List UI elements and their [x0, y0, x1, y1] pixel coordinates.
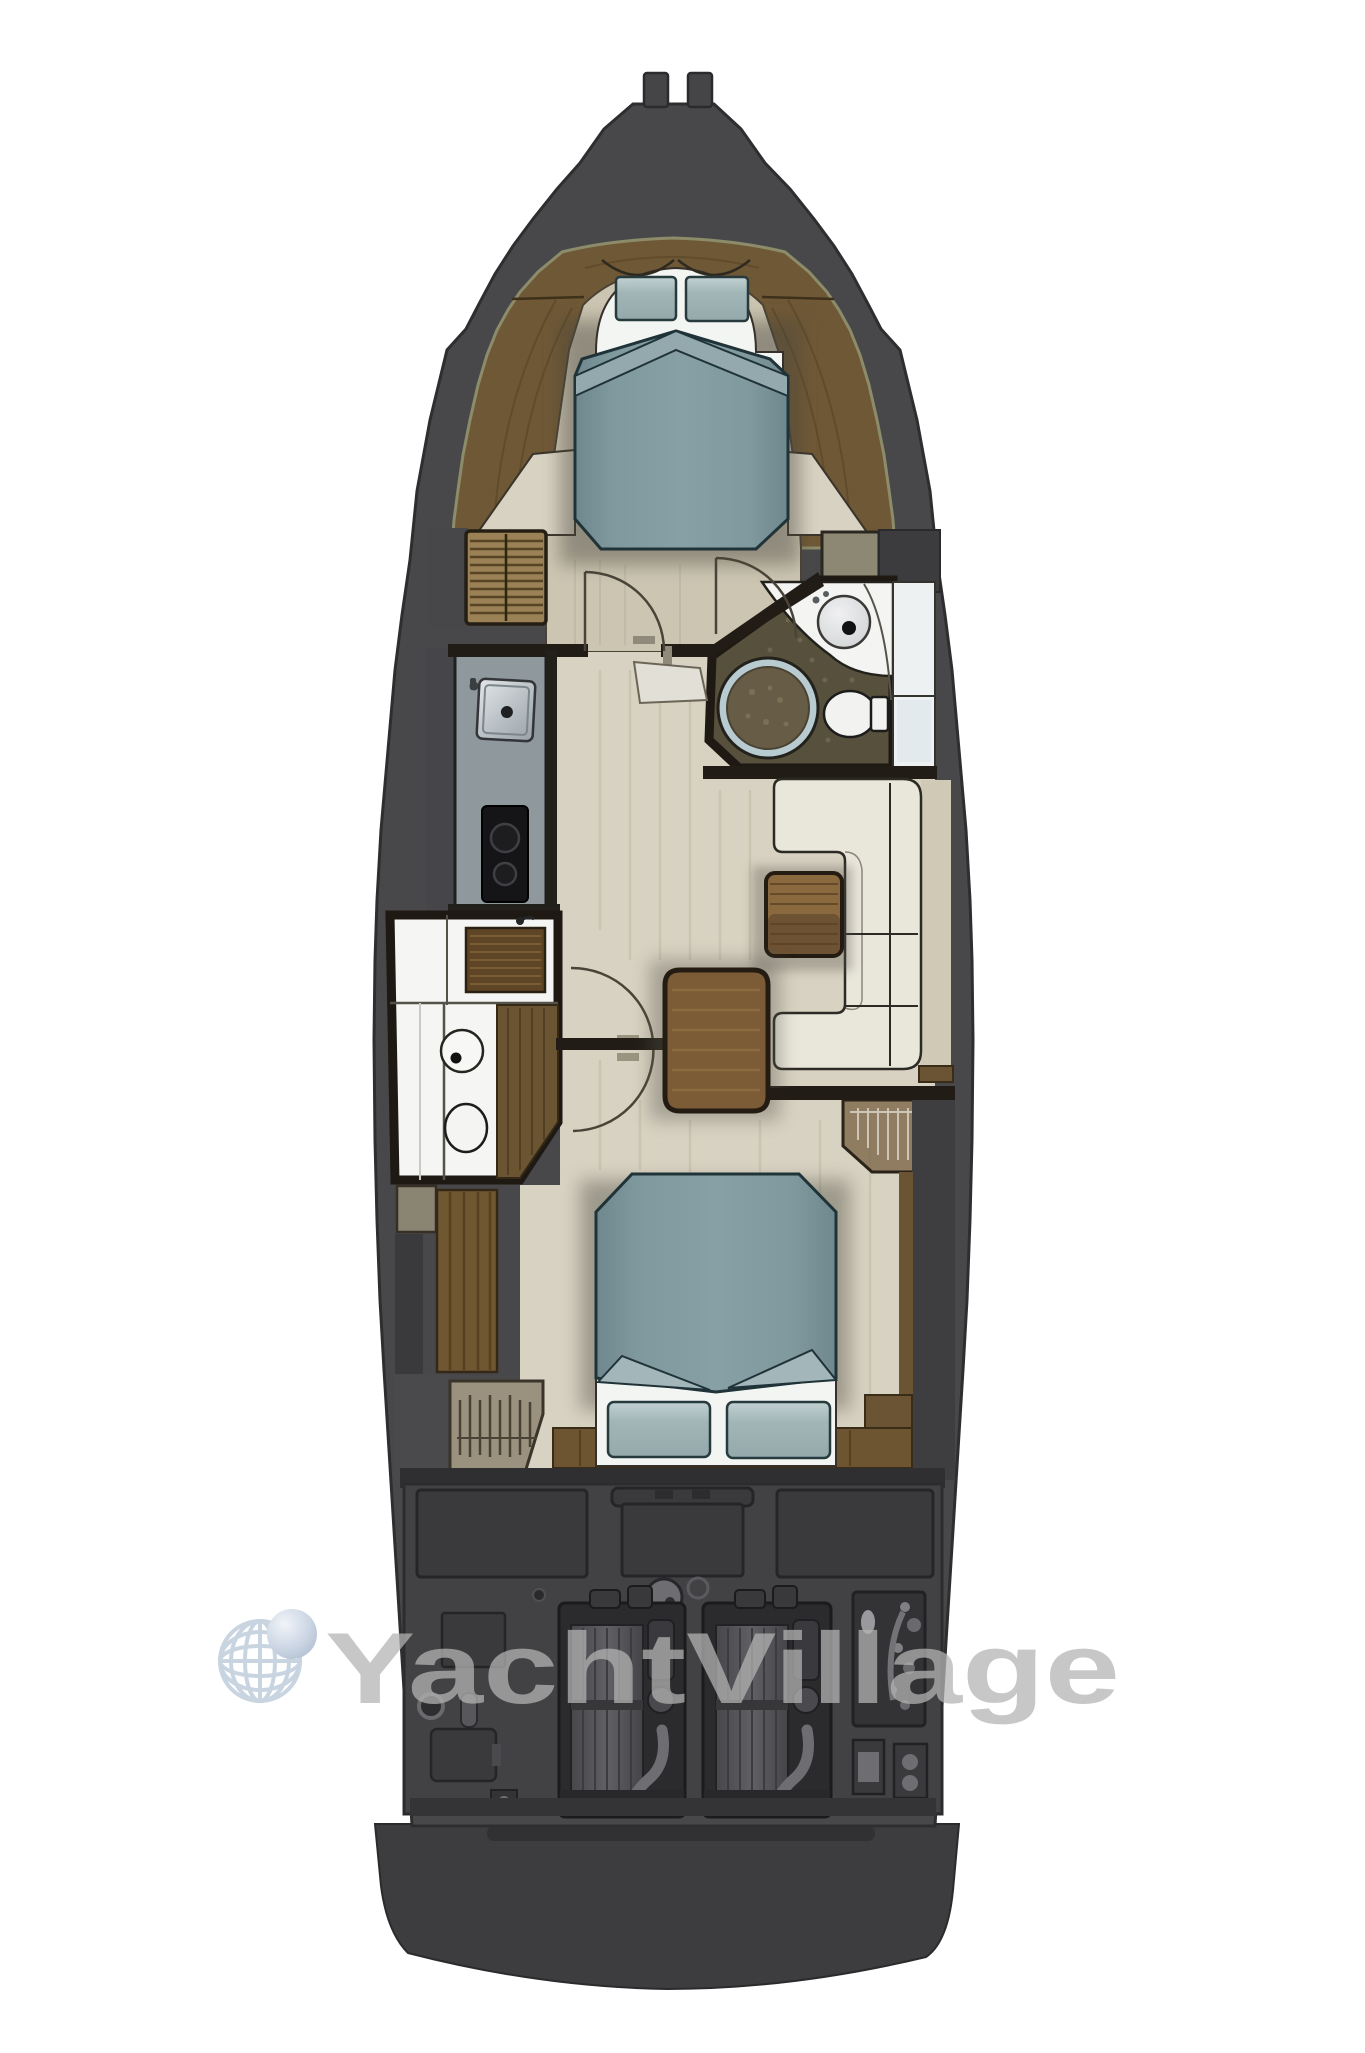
svg-text:YachtVillage: YachtVillage: [325, 1613, 1120, 1725]
